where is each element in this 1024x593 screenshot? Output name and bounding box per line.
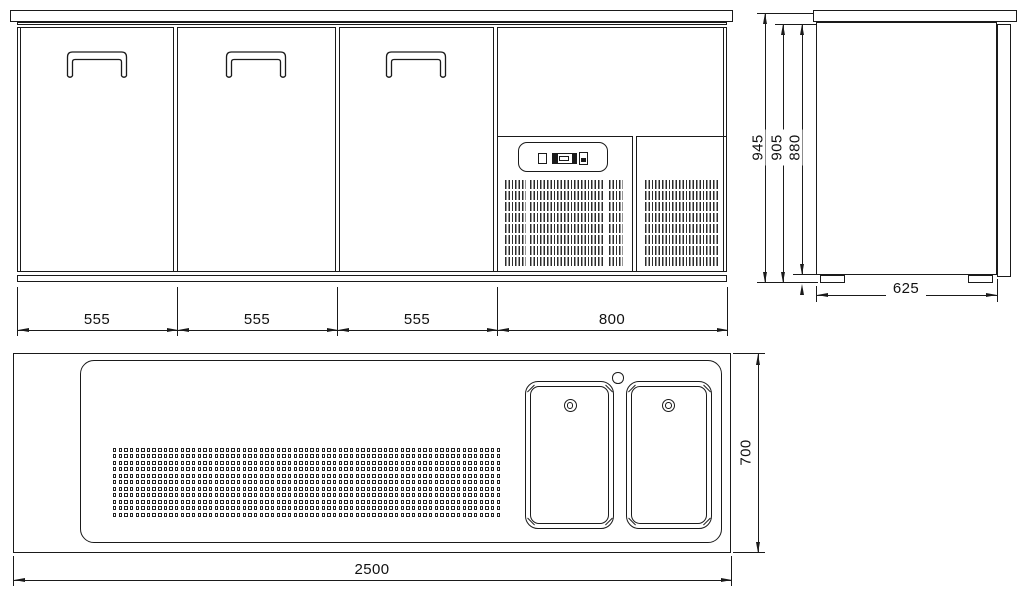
foot <box>820 275 845 283</box>
temperature-display <box>552 153 577 164</box>
top-trim <box>17 24 727 28</box>
door-handle-icon <box>66 49 128 79</box>
dim-line-front <box>18 330 728 331</box>
dim-label-door-width-1: 555 <box>77 312 117 327</box>
dim-label-height-905: 905 <box>769 129 784 165</box>
dim-ext-line <box>793 274 818 275</box>
bottom-rail <box>17 271 727 276</box>
drain-hole-icon <box>567 402 574 409</box>
compressor-divider-line <box>498 136 726 137</box>
dim-label-compressor-width: 800 <box>592 312 632 327</box>
dim-ext-line <box>733 353 765 354</box>
dim-label-door-width-3: 555 <box>397 312 437 327</box>
dim-ext-line <box>733 552 765 553</box>
dim-label-height-945: 945 <box>751 129 766 165</box>
control-panel <box>518 142 608 172</box>
tap-hole-icon <box>612 372 624 384</box>
vent-grille <box>505 180 526 268</box>
door-frame-left-line <box>20 27 21 271</box>
door-divider-2 <box>335 27 340 271</box>
technical-drawing-canvas: 555 555 555 800 945 905 880 <box>0 0 1024 593</box>
worktop-front <box>10 10 733 23</box>
vent-grille <box>609 180 623 268</box>
drain-hole-icon <box>665 402 672 409</box>
dim-label-width-2500: 2500 <box>347 562 397 577</box>
control-button-left <box>538 153 547 165</box>
dim-line-700 <box>758 354 759 553</box>
drainer-perforation-grid <box>113 448 500 517</box>
worktop-side <box>813 10 1017 22</box>
dim-label-depth-625: 625 <box>886 281 926 296</box>
dim-label-depth-700: 700 <box>739 434 754 470</box>
dim-line-2500 <box>14 580 732 581</box>
back-panel-side <box>997 24 1011 277</box>
vent-grille <box>645 180 719 268</box>
door-divider-3 <box>493 27 498 271</box>
dim-ext-line <box>997 279 998 302</box>
compressor-panel-divider <box>632 136 637 271</box>
control-button-right <box>579 152 589 165</box>
door-divider-1 <box>173 27 178 271</box>
vent-grille <box>530 180 605 268</box>
dim-label-height-880: 880 <box>788 129 803 165</box>
cabinet-body-side <box>816 22 997 275</box>
dim-label-door-width-2: 555 <box>237 312 277 327</box>
door-handle-icon <box>225 49 287 79</box>
frame-right-line <box>723 27 724 271</box>
door-handle-icon <box>385 49 447 79</box>
foot <box>968 275 993 283</box>
